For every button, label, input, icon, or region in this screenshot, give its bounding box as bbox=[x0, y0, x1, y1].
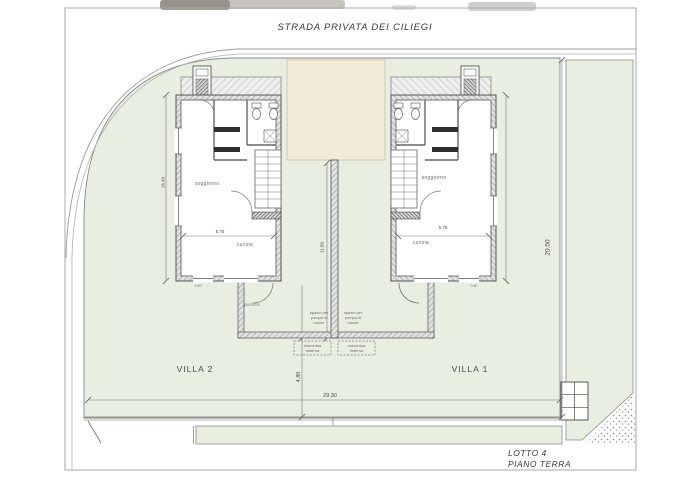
shared-court bbox=[287, 60, 385, 160]
lot-number-label: LOTTO 4 bbox=[508, 448, 547, 458]
hedge-strip bbox=[194, 426, 563, 444]
room-portico: portico bbox=[227, 302, 277, 307]
heat-pump-space-right: spazio per pompa di calore bbox=[340, 310, 366, 325]
site-plan-sheet: STRADA PRIVATA DEI CILIEGI VILLA 2 VILLA… bbox=[0, 0, 700, 495]
dim-villa-width-right: 5.75 bbox=[423, 225, 463, 230]
site-plan-drawing bbox=[0, 0, 700, 495]
dim-lot-width: 29.30 bbox=[310, 393, 350, 399]
outdoor-unit-right: macchina esterna bbox=[343, 343, 370, 353]
villa-1-label: VILLA 1 bbox=[435, 364, 505, 374]
heat-pump-space-left: spazio per pompa di calore bbox=[306, 310, 332, 325]
room-living-left: soggiorno bbox=[182, 181, 232, 187]
room-kitchen-right: cucina bbox=[396, 240, 446, 246]
room-kitchen-left: cucina bbox=[220, 242, 270, 248]
villa-2-label: VILLA 2 bbox=[160, 364, 230, 374]
villa-1-plan bbox=[391, 66, 509, 303]
dim-rear-setback: 4.80 bbox=[296, 359, 302, 395]
dim-villa-depth: 16.40 bbox=[161, 165, 166, 201]
street-title: STRADA PRIVATA DEI CILIEGI bbox=[205, 22, 505, 33]
dim-window-right: 0.90 bbox=[462, 284, 486, 288]
dim-window-left: 0.90 bbox=[186, 284, 210, 288]
dim-lot-depth: 20.50 bbox=[545, 228, 552, 268]
dim-center-depth: 11.50 bbox=[320, 230, 325, 266]
room-living-right: soggiorno bbox=[409, 175, 459, 181]
floor-label: PIANO TERRA bbox=[508, 459, 571, 469]
outdoor-unit-left: macchina esterna bbox=[299, 343, 326, 353]
dim-villa-width-left: 5.75 bbox=[200, 229, 240, 234]
